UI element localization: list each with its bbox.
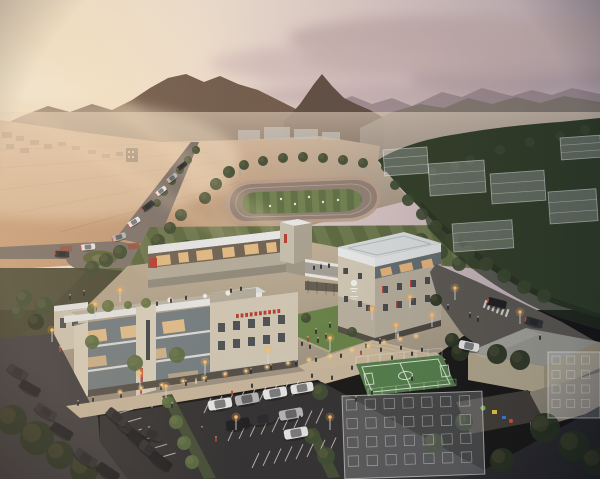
rendering-canvas bbox=[0, 0, 600, 479]
scene-svg bbox=[0, 0, 600, 479]
vignette bbox=[0, 0, 600, 479]
